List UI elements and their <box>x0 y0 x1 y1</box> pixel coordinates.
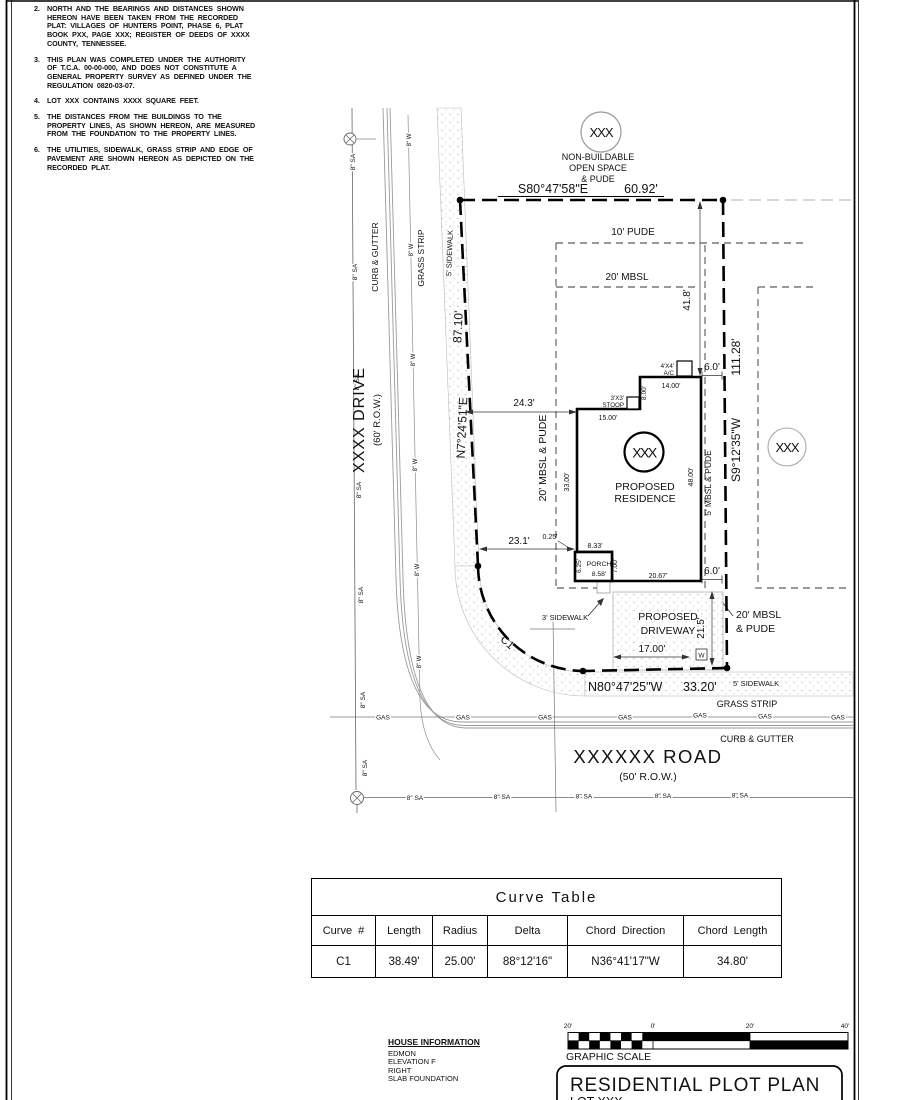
west-street-row: (60' R.O.W.) <box>372 394 383 446</box>
west-setback-label: 20' MBSL & PUDE <box>537 415 549 502</box>
dim-label-6-25: 6.25' <box>576 559 583 573</box>
front-walk <box>597 581 610 593</box>
ac-label-1: 4'X4' <box>661 363 674 370</box>
curve-table-title: Curve Table <box>312 879 782 916</box>
curve-table: Curve Table Curve # Length Radius Delta … <box>311 878 782 978</box>
bearing-north: S80°47'58"E <box>518 182 588 196</box>
driveway-label-2: DRIVEWAY <box>641 625 696 637</box>
curve-cell: 34.80' <box>684 946 782 978</box>
label-gas: GAS <box>618 715 632 722</box>
label-8sa: 8" SA <box>358 586 365 603</box>
label-8sa: 8" SA <box>350 153 357 170</box>
bearing-west-length: 87.10' <box>450 310 465 343</box>
open-space-label-1: NON-BUILDABLE <box>562 152 635 162</box>
label-gas: GAS <box>831 715 845 722</box>
note-item: 4. LOT XXX CONTAINS XXXX SQUARE FEET. <box>34 97 256 106</box>
dim-label-23-1: 23.1' <box>508 536 529 547</box>
bearing-south: N80°47'25"W <box>588 680 663 694</box>
label-8w: 8" W <box>411 353 417 366</box>
scale-bar <box>568 1033 848 1050</box>
curve-table-header: Curve # <box>312 916 376 946</box>
dim-label-48-00: 48.00' <box>688 468 695 487</box>
open-space: XXX NON-BUILDABLE OPEN SPACE & PUDE <box>562 112 635 184</box>
label-gas: GAS <box>456 715 470 722</box>
mbsl20-label: 20' MBSL <box>605 272 648 283</box>
curve-table-header: Length <box>376 916 433 946</box>
residence-label-1: PROPOSED <box>615 481 675 493</box>
pude10-label: 10' PUDE <box>611 227 655 238</box>
curve-cell: 88°12'16" <box>488 946 568 978</box>
house-info-line: SLAB FOUNDATION <box>388 1075 480 1084</box>
dim-label-20-67: 20.67' <box>649 573 668 580</box>
label-8sa: 8" SA <box>494 794 511 801</box>
open-space-label-2: OPEN SPACE <box>569 163 627 173</box>
note-number: 6. <box>34 146 47 172</box>
dim-label-8-00: 8.00' <box>641 386 648 400</box>
plot-plan-sheet: 8" SA 8" SA 8" SA 8" SA 8" SA 8" SA 8" S… <box>0 0 908 1100</box>
south-sidewalk-label: 5' SIDEWALK <box>733 679 779 688</box>
note-item: 3. THIS PLAN WAS COMPLETED UNDER THE AUT… <box>34 56 256 91</box>
open-space-lot: XXX <box>589 125 613 140</box>
walk-label: 3' SIDEWALK <box>542 613 588 622</box>
dim-label-21-5: 21.5' <box>696 617 707 638</box>
curve-table-header: Chord Direction <box>568 916 684 946</box>
stoop-outline <box>627 397 639 409</box>
scale-tick-3: 40' <box>841 1023 849 1030</box>
house-info-title: HOUSE INFORMATION <box>388 1038 480 1047</box>
west-grass-label: GRASS STRIP <box>416 229 426 286</box>
bearing-north-length: 60.92' <box>624 182 658 196</box>
dim-label-6-0-top: 6.0' <box>704 362 720 373</box>
note-text: THIS PLAN WAS COMPLETED UNDER THE AUTHOR… <box>47 56 256 91</box>
note-text: NORTH AND THE BEARINGS AND DISTANCES SHO… <box>47 5 256 49</box>
side-setback-label: 5' MBSL & PUDE <box>703 450 713 516</box>
west-curb-label: CURB & GUTTER <box>370 222 380 291</box>
label-8w: 8" W <box>409 243 415 256</box>
note-text: THE UTILITIES, SIDEWALK, GRASS STRIP AND… <box>47 146 256 172</box>
house-information: HOUSE INFORMATION EDMON ELEVATION F RIGH… <box>388 1038 480 1084</box>
label-8w: 8" W <box>417 655 423 668</box>
dim-label-0-25: 0.25' <box>543 534 558 541</box>
south-grass-label: GRASS STRIP <box>717 699 778 709</box>
dim-41-8: 41.8' <box>682 201 703 376</box>
adjacent-lot-number: XXX <box>775 440 799 455</box>
ac-unit-outline <box>677 361 692 376</box>
south-street-row: (50' R.O.W.) <box>619 771 676 783</box>
graphic-scale: 20' 0' 20' 40' GRAPHIC SCALE <box>564 1023 849 1063</box>
adjacent-lot: XXX <box>768 428 806 466</box>
label-8sa: 8" SA <box>360 691 367 708</box>
water-meter-label: W <box>698 653 705 660</box>
residence-label-2: RESIDENCE <box>614 493 675 505</box>
label-8w: 8" W <box>415 563 421 576</box>
west-street-name: XXXX DRIVE <box>351 367 368 473</box>
label-8sa: 8" SA <box>655 793 672 800</box>
note-item: 5. THE DISTANCES FROM THE BUILDINGS TO T… <box>34 113 256 139</box>
label-8w: 8" W <box>413 458 419 471</box>
corner-sidewalk-band <box>455 566 585 696</box>
stoop-label-2: STOOP <box>602 402 624 409</box>
label-gas: GAS <box>758 714 772 721</box>
dim-label-15-00: 15.00' <box>599 415 618 422</box>
south-street-name: XXXXXX ROAD <box>573 746 722 767</box>
note-item: 2. NORTH AND THE BEARINGS AND DISTANCES … <box>34 5 256 49</box>
south-street: GAS GAS GAS GAS GAS GAS GAS 8" SA 8" SA … <box>330 618 853 812</box>
open-space-label-3: & PUDE <box>581 174 615 184</box>
front-setback-label-1: 20' MBSL <box>736 609 781 621</box>
title-block: RESIDENTIAL PLOT PLAN LOT XXX <box>557 1066 842 1100</box>
curve-table-row: C1 38.49' 25.00' 88°12'16" N36°41'17"W 3… <box>312 946 782 978</box>
scale-tick-2: 20' <box>746 1023 754 1030</box>
sheet-title: RESIDENTIAL PLOT PLAN <box>570 1075 820 1096</box>
label-8sa: 8" SA <box>362 759 369 776</box>
note-text: LOT XXX CONTAINS XXXX SQUARE FEET. <box>47 97 256 106</box>
dim-label-33-00: 33.00' <box>564 473 571 492</box>
boundary-east <box>723 200 727 668</box>
label-8sa: 8" SA <box>352 263 359 280</box>
curve-cell: C1 <box>312 946 376 978</box>
label-8w: 8" W <box>407 133 413 146</box>
label-gas: GAS <box>693 713 707 720</box>
dim-label-6-0-bottom: 6.0' <box>704 566 720 577</box>
bearing-east: S9°12'35"W <box>729 417 743 482</box>
note-item: 6. THE UTILITIES, SIDEWALK, GRASS STRIP … <box>34 146 256 172</box>
label-gas: GAS <box>538 715 552 722</box>
stoop-label-1: 3'X3' <box>611 395 624 402</box>
sheet-lot: LOT XXX <box>570 1095 623 1100</box>
plan-notes: 2. NORTH AND THE BEARINGS AND DISTANCES … <box>34 5 256 179</box>
label-8sa: 8" SA <box>576 794 593 801</box>
note-number: 5. <box>34 113 47 139</box>
lot-number: XXX <box>632 445 658 461</box>
scale-tick-0: 20' <box>564 1023 572 1030</box>
porch-label: PORCH <box>587 561 612 568</box>
dim-label-17-00: 17.00' <box>639 644 666 655</box>
south-curb-label: CURB & GUTTER <box>720 734 794 744</box>
curve-table-header: Chord Length <box>684 916 782 946</box>
driveway-label-1: PROPOSED <box>638 611 698 623</box>
scale-caption: GRAPHIC SCALE <box>566 1051 651 1063</box>
bearing-west: N7°24'51"E <box>454 397 471 459</box>
dim-label-7-00: 7.00' <box>612 559 619 574</box>
ac-label-2: A/C <box>664 370 675 377</box>
label-8sa: 8" SA <box>732 793 749 800</box>
dim-label-14-00: 14.00' <box>662 383 681 390</box>
curve-cell: N36°41'17"W <box>568 946 684 978</box>
curve-table-header: Radius <box>433 916 488 946</box>
front-setback-label-2: & PUDE <box>736 623 775 635</box>
bearing-south-length: 33.20' <box>683 680 717 694</box>
note-number: 4. <box>34 97 47 106</box>
scale-tick-1: 0' <box>651 1023 656 1030</box>
dim-label-8-58: 8.58' <box>592 571 607 578</box>
dim-label-41-8: 41.8' <box>682 289 693 310</box>
curve-table-header: Delta <box>488 916 568 946</box>
label-8sa: 8" SA <box>356 481 363 498</box>
note-number: 3. <box>34 56 47 91</box>
note-number: 2. <box>34 5 47 49</box>
curve-cell: 25.00' <box>433 946 488 978</box>
label-gas: GAS <box>376 715 390 722</box>
bearing-east-length: 111.28' <box>729 338 743 375</box>
west-sidewalk-label: 5' SIDEWALK <box>444 230 455 276</box>
dim-label-8-33: 8.33' <box>588 543 603 550</box>
residence: XXX PROPOSED RESIDENCE 14.00' 8.00' 15.0… <box>564 361 701 581</box>
note-text: THE DISTANCES FROM THE BUILDINGS TO THE … <box>47 113 256 139</box>
label-8sa: 8" SA <box>407 795 424 802</box>
curve-cell: 38.49' <box>376 946 433 978</box>
dim-label-24-3: 24.3' <box>513 398 534 409</box>
